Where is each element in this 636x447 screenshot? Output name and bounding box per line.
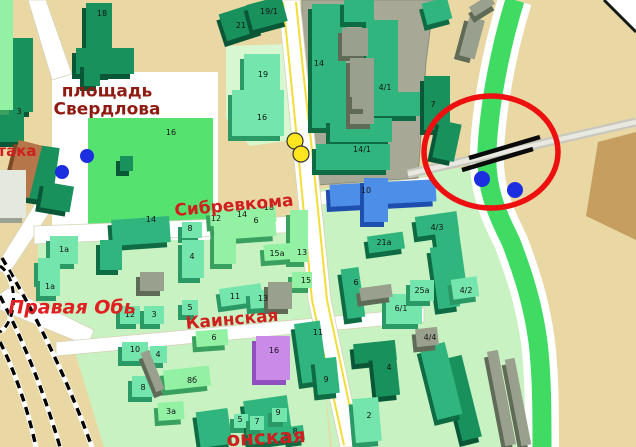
- poi-dot-blue: [55, 165, 69, 179]
- annotation-layer: [0, 0, 636, 447]
- poi-dot-blue: [474, 171, 490, 187]
- bridge-marker-line: [469, 137, 540, 158]
- bridge-marker-line: [462, 149, 533, 170]
- map-viewport[interactable]: 183162119/11916144/114/17101484121418615…: [0, 0, 636, 447]
- poi-dot-yellow: [293, 146, 309, 162]
- poi-dot-blue: [80, 149, 94, 163]
- poi-dot-blue: [507, 182, 523, 198]
